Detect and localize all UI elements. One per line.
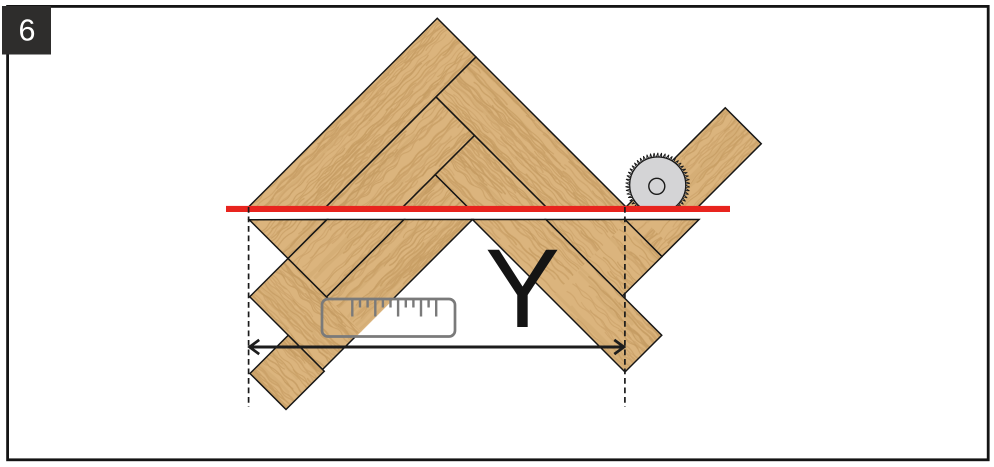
svg-text:Y: Y [485,225,560,351]
svg-text:6: 6 [19,14,36,48]
